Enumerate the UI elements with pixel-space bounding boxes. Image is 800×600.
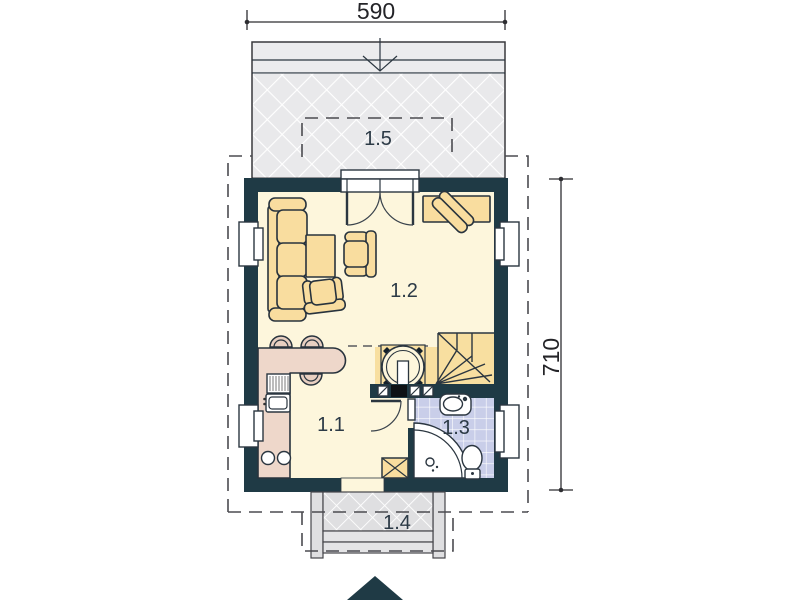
armchair-icon xyxy=(344,231,376,277)
armchair-icon xyxy=(301,277,346,315)
room-label-porch: 1.4 xyxy=(383,512,411,534)
sofa-icon xyxy=(268,198,307,321)
dimension-right: 710 xyxy=(538,177,573,493)
boiler-icon xyxy=(381,345,425,389)
entrance-arrow-icon xyxy=(347,576,403,600)
floor-hatch-icon xyxy=(382,458,408,478)
dimension-height-label: 710 xyxy=(538,338,564,376)
bathroom: 1.3 xyxy=(408,394,494,479)
window-kitchen-left xyxy=(239,405,263,447)
terrace-hatch xyxy=(253,74,504,178)
entrance-porch xyxy=(311,492,445,558)
coffee-table-icon xyxy=(306,235,335,277)
room-label-living: 1.2 xyxy=(390,280,418,302)
dimension-top: 590 xyxy=(245,0,508,30)
interior-wall-chimney xyxy=(370,384,508,398)
room-label-kitchen: 1.1 xyxy=(317,414,345,436)
room-label-bathroom: 1.3 xyxy=(442,417,470,439)
stove-icon xyxy=(267,374,290,393)
window-living-left xyxy=(239,222,263,266)
toilet-icon xyxy=(462,446,482,480)
window-bathroom-right xyxy=(495,405,519,458)
floor-plan-drawing: 590 1.5 xyxy=(0,0,800,600)
kitchen-sink-icon xyxy=(263,394,290,412)
washbasin-icon xyxy=(440,394,471,415)
terrace-area: 1.5 xyxy=(252,38,505,178)
porch-step xyxy=(323,531,433,542)
dimension-width-label: 590 xyxy=(357,0,395,24)
room-label-terrace: 1.5 xyxy=(364,128,392,150)
bathroom-door xyxy=(408,399,415,420)
flue-icon xyxy=(391,385,407,397)
window-living-right xyxy=(495,222,519,266)
